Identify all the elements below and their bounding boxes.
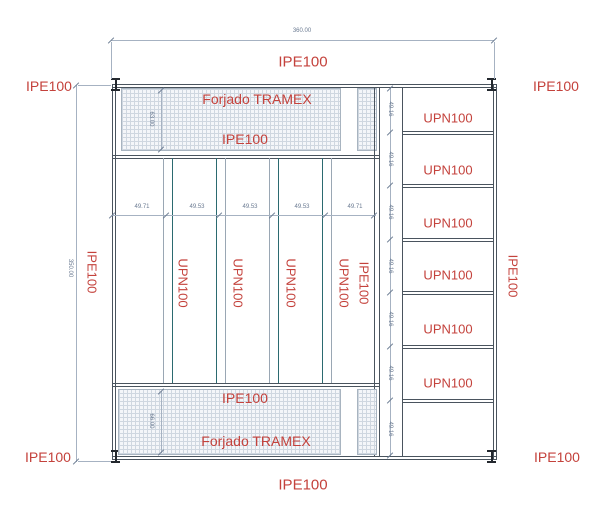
bottom-forjado-beam-label: IPE100	[222, 391, 268, 405]
member-line	[269, 158, 270, 383]
frame-right-line	[493, 84, 494, 460]
corner-label-top-left: IPE100	[26, 79, 72, 93]
right-zone-divider	[402, 88, 403, 456]
column-section-icon	[487, 450, 496, 463]
right-bay-line	[402, 348, 493, 349]
left-edge-member-label: IPE100	[86, 251, 99, 294]
top-dimension-extension	[111, 42, 112, 79]
central-member-label: UPN100	[338, 258, 351, 307]
right-bay-dim-text: 49.16	[387, 311, 393, 326]
corner-label-top-right: IPE100	[533, 79, 579, 93]
bottom-interior-beam	[112, 386, 379, 387]
member-line	[216, 158, 217, 383]
top-dimension-text: 360.00	[293, 28, 311, 34]
right-bay-line	[402, 345, 493, 346]
frame-left-line	[112, 84, 113, 460]
left-dimension-line	[76, 85, 77, 462]
top-interior-beam	[112, 155, 379, 156]
central-bay-dim-text: 49.71	[347, 204, 362, 210]
right-bay-label: UPN100	[423, 217, 472, 230]
frame-right-line	[496, 84, 497, 460]
central-right-member	[379, 88, 380, 456]
corner-label-bottom-right: IPE100	[534, 450, 580, 464]
right-bay-dim-text: 49.16	[387, 151, 393, 166]
left-dimension-extension	[78, 461, 111, 462]
top-dimension-line	[111, 40, 494, 41]
top-dimension-extension	[494, 42, 495, 79]
right-bay-line	[402, 241, 493, 242]
left-dimension-extension	[78, 85, 111, 86]
central-bay-dim-text: 49.53	[294, 204, 309, 210]
top-forjado-label: Forjado TRAMEX	[202, 92, 311, 106]
right-bay-label: UPN100	[423, 269, 472, 282]
top-band-dimension-line	[161, 90, 162, 150]
frame-top-line	[112, 84, 496, 85]
left-dimension-text: 350.00	[67, 259, 73, 277]
central-bay-dim-text: 49.53	[242, 204, 257, 210]
bottom-interior-beam	[112, 383, 379, 384]
member-line	[322, 158, 323, 383]
bottom-forjado-hatch-right	[357, 389, 377, 455]
bottom-band-depth-text: 66.00	[148, 413, 154, 428]
right-bay-label: UPN100	[423, 164, 472, 177]
central-member-label: UPN100	[232, 258, 245, 307]
member-line	[331, 158, 332, 383]
column-section-icon	[111, 78, 120, 91]
right-bay-label: UPN100	[423, 377, 472, 390]
frame-left-line	[115, 84, 116, 460]
central-right-member-label: IPE100	[358, 262, 371, 305]
right-bay-label: UPN100	[423, 112, 472, 125]
central-bay-dim-text: 49.71	[134, 204, 149, 210]
right-bay-dim-text: 49.16	[387, 421, 393, 436]
top-band-depth-text: 63.00	[148, 111, 154, 126]
right-bay-dim-text: 49.16	[387, 258, 393, 273]
central-member-label: UPN100	[285, 258, 298, 307]
corner-label-bottom-left: IPE100	[25, 450, 71, 464]
right-bay-line	[402, 184, 493, 185]
frame-bottom-line	[112, 456, 496, 457]
structural-framing-drawing: 360.00 350.00 63.00 Forjado TRAMEX IPE10…	[0, 0, 600, 517]
right-bay-dim-text: 49.16	[387, 204, 393, 219]
right-bay-dim-text: 49.16	[387, 365, 393, 380]
right-bay-line	[402, 291, 493, 292]
right-bay-dim-text: 49.16	[387, 101, 393, 116]
top-interior-beam	[112, 158, 379, 159]
right-bay-line	[402, 238, 493, 239]
central-bay-dim-text: 49.53	[189, 204, 204, 210]
bottom-edge-beam-label: IPE100	[278, 478, 327, 493]
right-bay-line	[402, 399, 493, 400]
frame-bottom-line	[112, 459, 496, 460]
central-member-label: UPN100	[177, 258, 190, 307]
bottom-forjado-label: Forjado TRAMEX	[201, 434, 310, 448]
bottom-band-dimension-line	[161, 391, 162, 453]
right-bay-line	[402, 294, 493, 295]
member-line	[172, 158, 173, 383]
right-bay-line	[402, 131, 493, 132]
right-bay-line	[402, 402, 493, 403]
column-section-icon	[487, 78, 496, 91]
right-bay-line	[402, 187, 493, 188]
member-line	[225, 158, 226, 383]
member-line	[163, 158, 164, 383]
top-forjado-beam-label: IPE100	[222, 132, 268, 146]
top-edge-beam-label: IPE100	[278, 55, 327, 70]
right-bay-label: UPN100	[423, 323, 472, 336]
member-line	[278, 158, 279, 383]
right-edge-member-label: IPE100	[507, 255, 520, 298]
central-dimension-line	[112, 215, 376, 216]
right-bay-line	[402, 134, 493, 135]
